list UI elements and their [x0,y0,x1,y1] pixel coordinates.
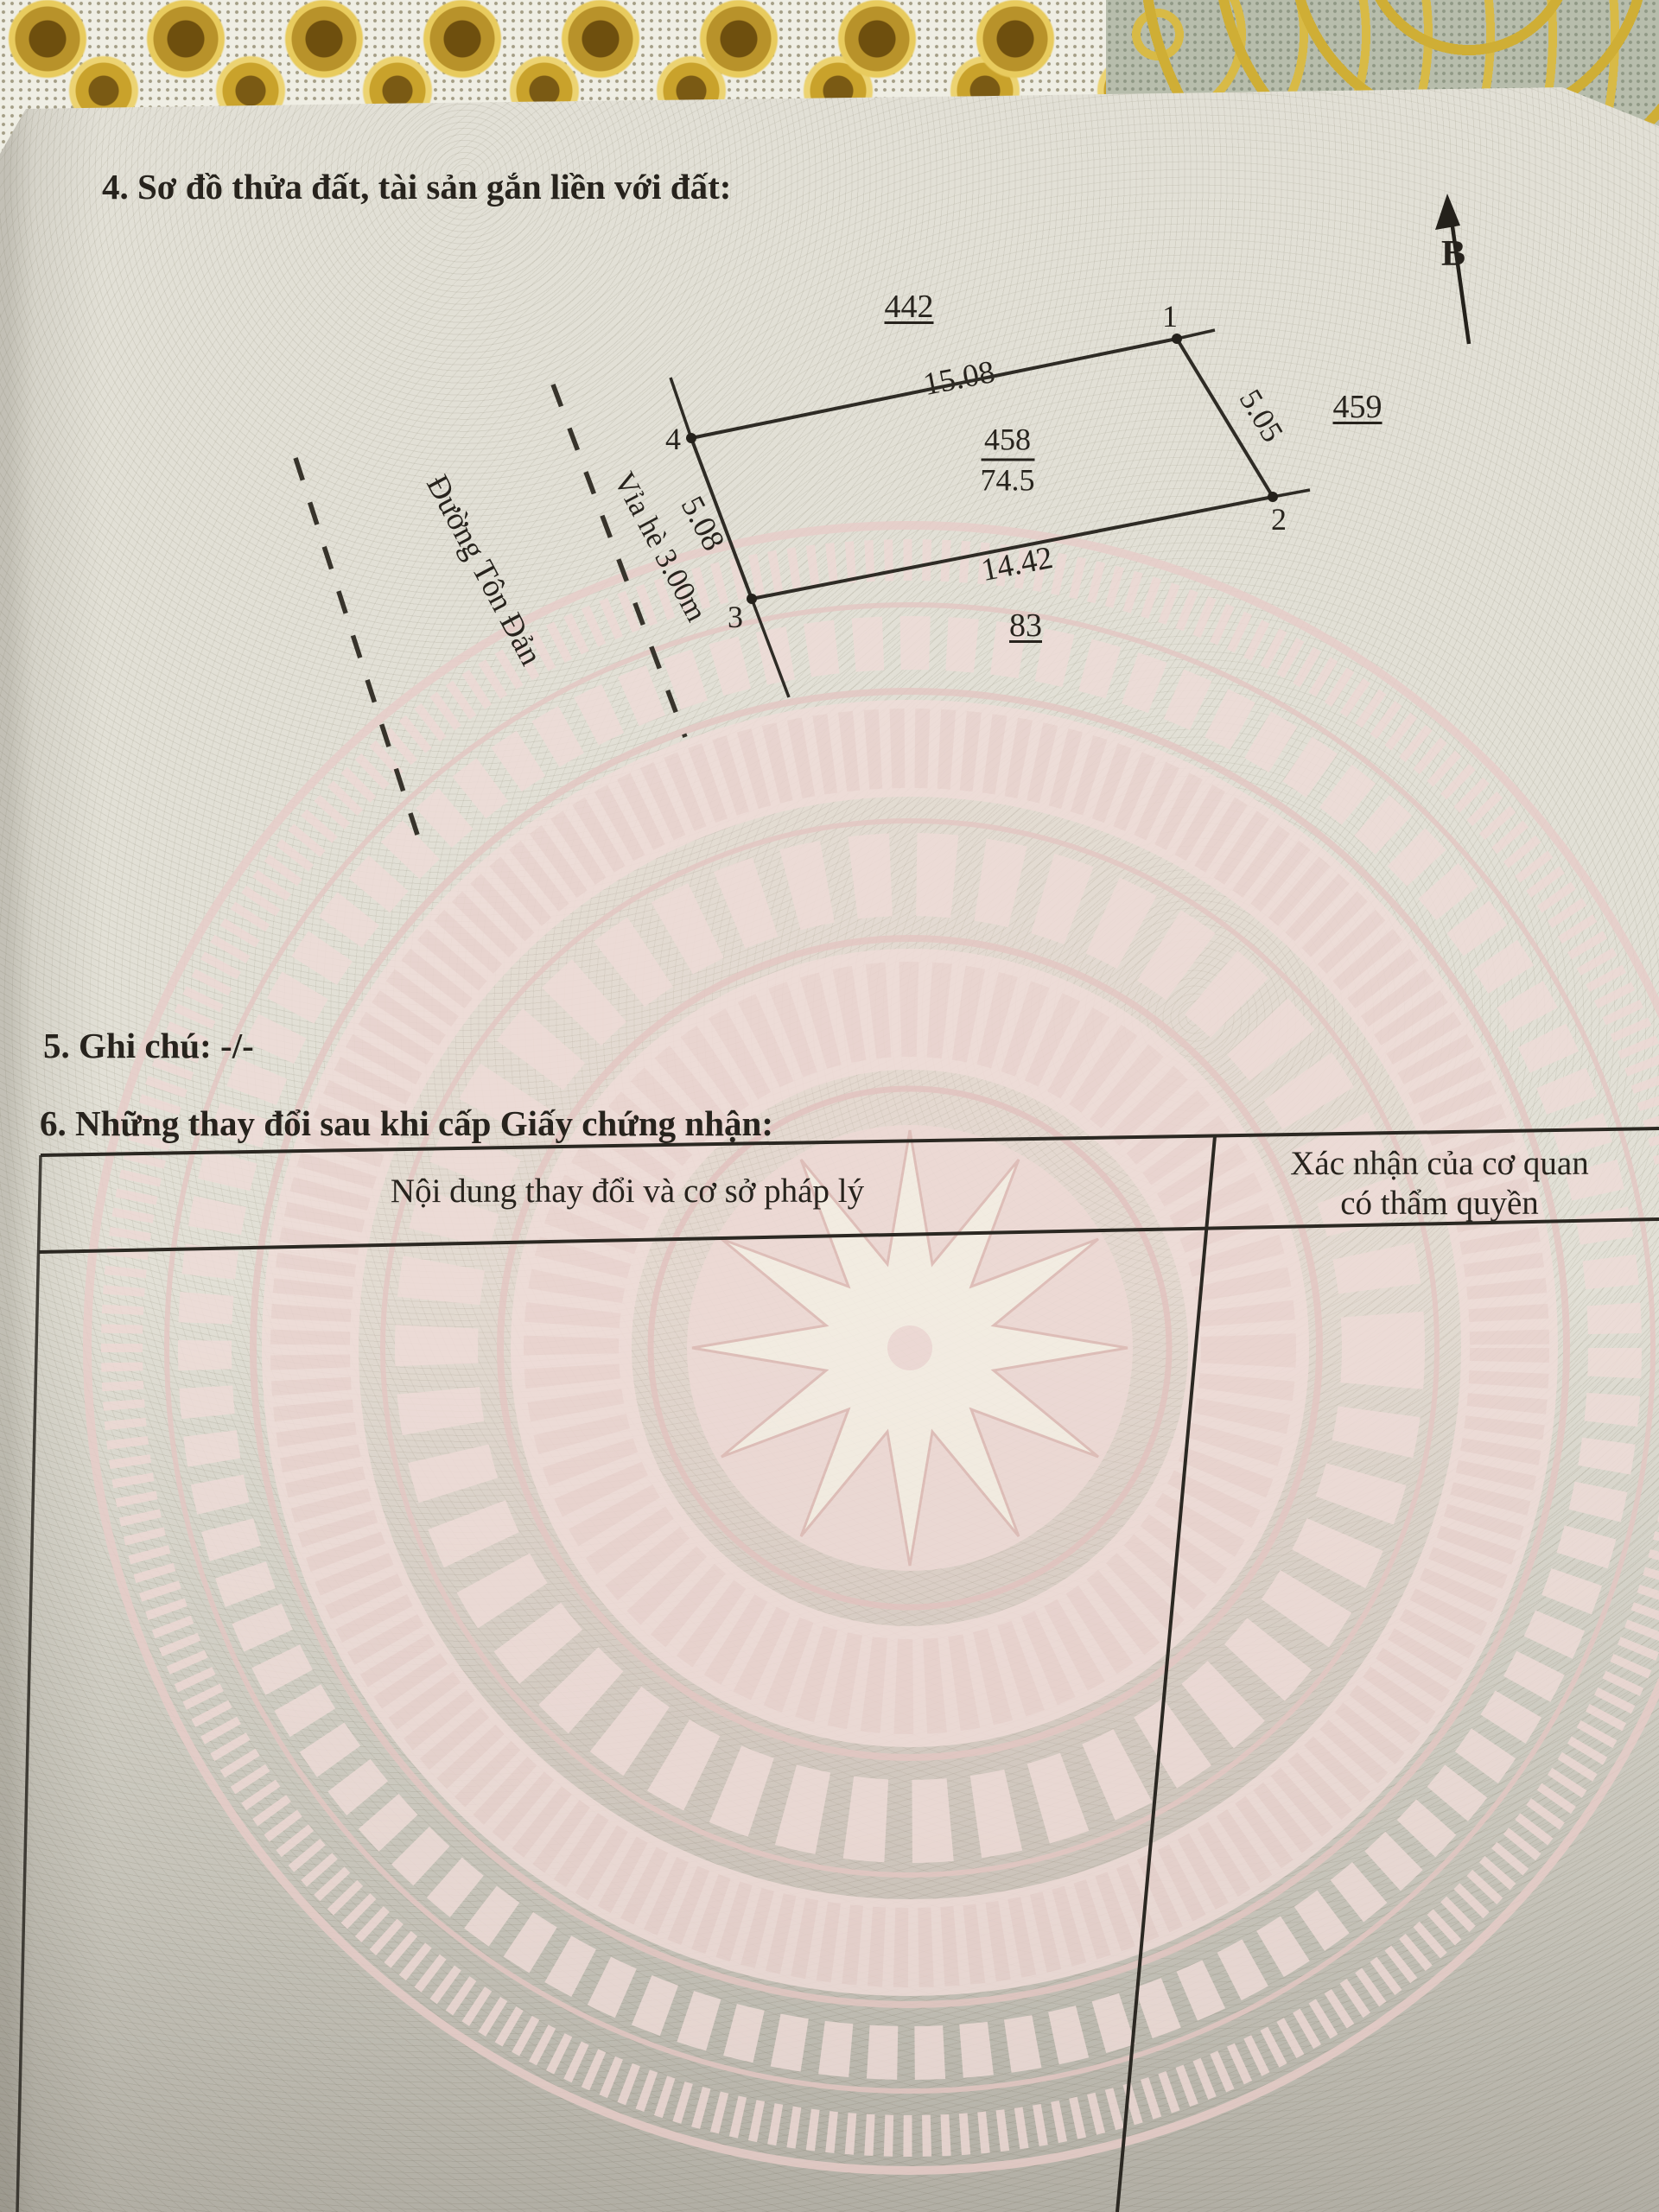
edge-top-length-label: 15.08 [920,353,998,404]
table-header-confirm-column: Xác nhận của cơ quan có thẩm quyền [1220,1144,1659,1224]
vertex-1-dot [1172,334,1182,344]
parcel-area: 74.5 [981,461,1035,499]
section4-title: 4. Sơ đồ thửa đất, tài sản gắn liền với … [102,166,731,207]
vertex-1-label: 1 [1162,298,1178,334]
photo-of-land-certificate-page: { "sections": { "s4_title": "4. Sơ đồ th… [0,0,1659,2212]
confirm-column-header-line1: Xác nhận của cơ quan [1220,1144,1659,1184]
confirm-column-header-line2: có thẩm quyền [1220,1184,1659,1224]
table-header-content-column: Nội dung thay đổi và cơ sở pháp lý [41,1172,1214,1211]
section6-title: 6. Những thay đổi sau khi cấp Giấy chứng… [40,1103,773,1144]
tick-beyond-vertex-1 [1177,330,1215,339]
vertex-3-label: 3 [728,599,743,635]
vertex-4-label: 4 [665,421,681,457]
content-column-header-text: Nội dung thay đổi và cơ sở pháp lý [391,1173,864,1210]
parcel-number-and-area: 458 74.5 [981,422,1035,499]
tick-beyond-vertex-2 [1273,490,1310,497]
vertex-4-dot [686,433,696,443]
vertex-2-label: 2 [1271,501,1287,537]
adjacent-parcel-right-label: 459 [1333,388,1382,426]
edge-right-length-label: 5.05 [1232,383,1291,448]
bronze-drum-watermark [72,510,1659,2186]
north-label: B [1441,233,1465,275]
certificate-page: 4. Sơ đồ thửa đất, tài sản gắn liền với … [0,0,1659,2212]
north-arrow-head [1435,194,1460,230]
parcel-number: 458 [981,422,1034,461]
section5-note: 5. Ghi chú: -/- [43,1025,254,1066]
table-left-border [17,1155,41,2212]
adjacent-parcel-top-label: 442 [885,288,934,326]
adjacent-parcel-bottom-label: 83 [1009,607,1042,645]
